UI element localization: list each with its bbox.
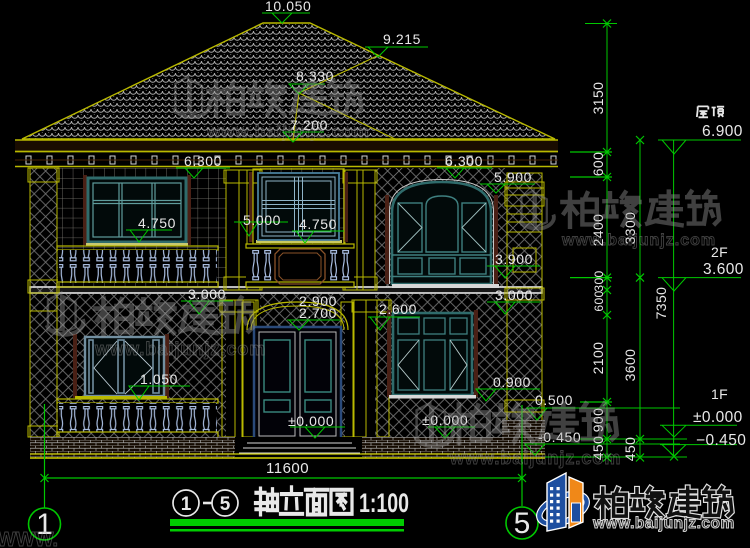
svg-text:www.baijunjz.com: www.baijunjz.com: [94, 339, 266, 359]
svg-text:300: 300: [592, 270, 606, 291]
svg-text:2.600: 2.600: [379, 301, 417, 317]
svg-text:3.600: 3.600: [703, 261, 744, 278]
svg-text:1:100: 1:100: [359, 488, 409, 518]
svg-text:www.baijunjz.com: www.baijunjz.com: [592, 515, 735, 532]
svg-text:WWW.: WWW.: [0, 529, 58, 548]
svg-text:5.900: 5.900: [494, 169, 532, 185]
svg-text:±0.000: ±0.000: [288, 413, 334, 429]
svg-text:6.900: 6.900: [702, 123, 743, 140]
svg-text:1.050: 1.050: [140, 371, 178, 387]
svg-text:8.330: 8.330: [296, 68, 334, 84]
svg-text:0.900: 0.900: [493, 374, 531, 390]
svg-text:3150: 3150: [590, 82, 606, 115]
svg-text:5: 5: [514, 507, 531, 540]
svg-text:4.750: 4.750: [299, 216, 337, 232]
svg-text:3.900: 3.900: [495, 251, 533, 267]
svg-text:3600: 3600: [622, 349, 638, 382]
svg-text:www.baijunjz.com: www.baijunjz.com: [449, 448, 621, 468]
svg-text:www.baijunjz.com: www.baijunjz.com: [206, 122, 370, 141]
svg-text:6.300: 6.300: [184, 153, 222, 169]
svg-text:600: 600: [592, 290, 606, 311]
svg-text:6.300: 6.300: [445, 153, 483, 169]
svg-text:9.215: 9.215: [383, 31, 421, 47]
svg-text:450: 450: [622, 437, 638, 462]
svg-text:2.700: 2.700: [299, 305, 337, 321]
svg-text:10.050: 10.050: [265, 0, 311, 14]
svg-text:1: 1: [181, 494, 192, 515]
svg-text:5: 5: [220, 494, 231, 515]
svg-text:3.000: 3.000: [495, 287, 533, 303]
svg-text:±0.000: ±0.000: [693, 409, 743, 426]
svg-text:600: 600: [590, 152, 606, 177]
svg-text:7350: 7350: [653, 287, 669, 320]
svg-text:−0.450: −0.450: [696, 432, 746, 449]
svg-text:11600: 11600: [266, 460, 309, 477]
svg-text:5.000: 5.000: [243, 212, 281, 228]
svg-text:0.500: 0.500: [535, 392, 573, 408]
svg-text:www.baijunjz.com: www.baijunjz.com: [561, 232, 716, 249]
svg-text:2100: 2100: [590, 342, 606, 375]
svg-text:4.750: 4.750: [138, 215, 176, 231]
svg-text:1F: 1F: [711, 386, 728, 402]
